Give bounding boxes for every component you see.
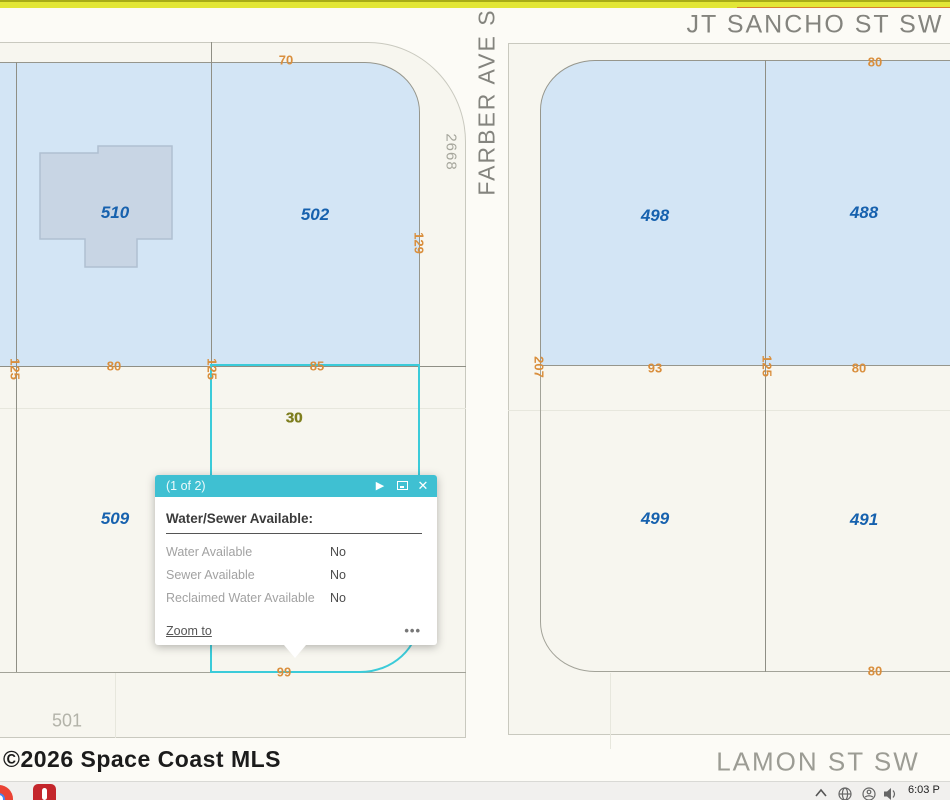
volume-icon	[884, 788, 895, 800]
parcel-label-499: 499	[641, 509, 669, 529]
field-value: No	[330, 591, 346, 605]
dock-icon	[397, 481, 408, 490]
dimension-label: 99	[277, 665, 291, 680]
system-tray[interactable]	[812, 784, 904, 800]
field-label: Sewer Available	[166, 568, 255, 582]
parcel-label-502: 502	[301, 205, 329, 225]
parcel-label-509: 509	[101, 509, 129, 529]
block-number: 501	[52, 711, 82, 732]
parcel-label-498: 498	[641, 206, 669, 226]
dimension-label: 125	[205, 358, 220, 380]
dimension-label: 129	[412, 232, 427, 254]
parcel-area-south-right[interactable]	[540, 366, 950, 672]
dimension-label: 125	[8, 358, 23, 380]
dimension-label: 85	[310, 359, 324, 374]
next-feature-button[interactable]: ▶	[371, 475, 389, 497]
popup-pointer	[284, 645, 306, 658]
field-value: No	[330, 568, 346, 582]
network-globe-icon	[839, 788, 851, 800]
dimension-label: 207	[532, 356, 547, 378]
parcel-label-491: 491	[850, 510, 878, 530]
faint-lot-line	[115, 673, 116, 738]
dimension-label: 80	[852, 361, 866, 376]
taskbar: 6:03 P	[0, 781, 950, 800]
dimension-label: 80	[868, 55, 882, 70]
parcel-label-510: 510	[101, 203, 129, 223]
dimension-label: 70	[279, 53, 293, 68]
tray-expand-icon	[816, 790, 826, 796]
dimension-label: 125	[760, 355, 775, 377]
parcel-area-north-right[interactable]	[540, 60, 950, 366]
lot-line	[211, 42, 212, 366]
street-label-lamon: LAMON ST SW	[716, 747, 920, 778]
screen: 510 502 498 488 509 499 491 70 129 125 8…	[0, 0, 950, 800]
house-number: 2668	[443, 133, 460, 170]
dimension-label: 80	[107, 359, 121, 374]
account-icon	[863, 788, 875, 800]
parcel-label-488: 488	[850, 203, 878, 223]
selected-lot-number: 30	[286, 410, 303, 427]
street-label-jt-sancho: JT SANCHO ST SW	[687, 11, 944, 40]
field-value: No	[330, 545, 346, 559]
map-canvas[interactable]: 510 502 498 488 509 499 491 70 129 125 8…	[0, 8, 950, 781]
street-label-farber: FARBER AVE S	[474, 8, 501, 195]
clock[interactable]: 6:03 P	[908, 784, 940, 796]
dimension-label: 93	[648, 361, 662, 376]
feature-popup: (1 of 2) ▶ ✕ Water/Sewer Available: Wate…	[155, 475, 437, 645]
field-label: Water Available	[166, 545, 252, 559]
faint-lot-line	[610, 673, 611, 749]
zoom-to-link[interactable]: Zoom to	[166, 624, 212, 638]
chrome-icon[interactable]	[0, 785, 13, 800]
field-label: Reclaimed Water Available	[166, 591, 315, 605]
more-options-button[interactable]: •••	[404, 623, 421, 638]
popup-page-indicator: (1 of 2)	[166, 479, 206, 493]
dock-button[interactable]	[393, 475, 411, 497]
popup-header[interactable]: (1 of 2) ▶ ✕	[155, 475, 437, 497]
close-button[interactable]: ✕	[414, 475, 432, 497]
red-app-icon[interactable]	[33, 784, 56, 800]
popup-title: Water/Sewer Available:	[166, 511, 313, 526]
popup-divider	[166, 533, 422, 534]
mls-watermark: ©2026 Space Coast MLS	[3, 746, 281, 773]
dimension-label: 80	[868, 664, 882, 679]
